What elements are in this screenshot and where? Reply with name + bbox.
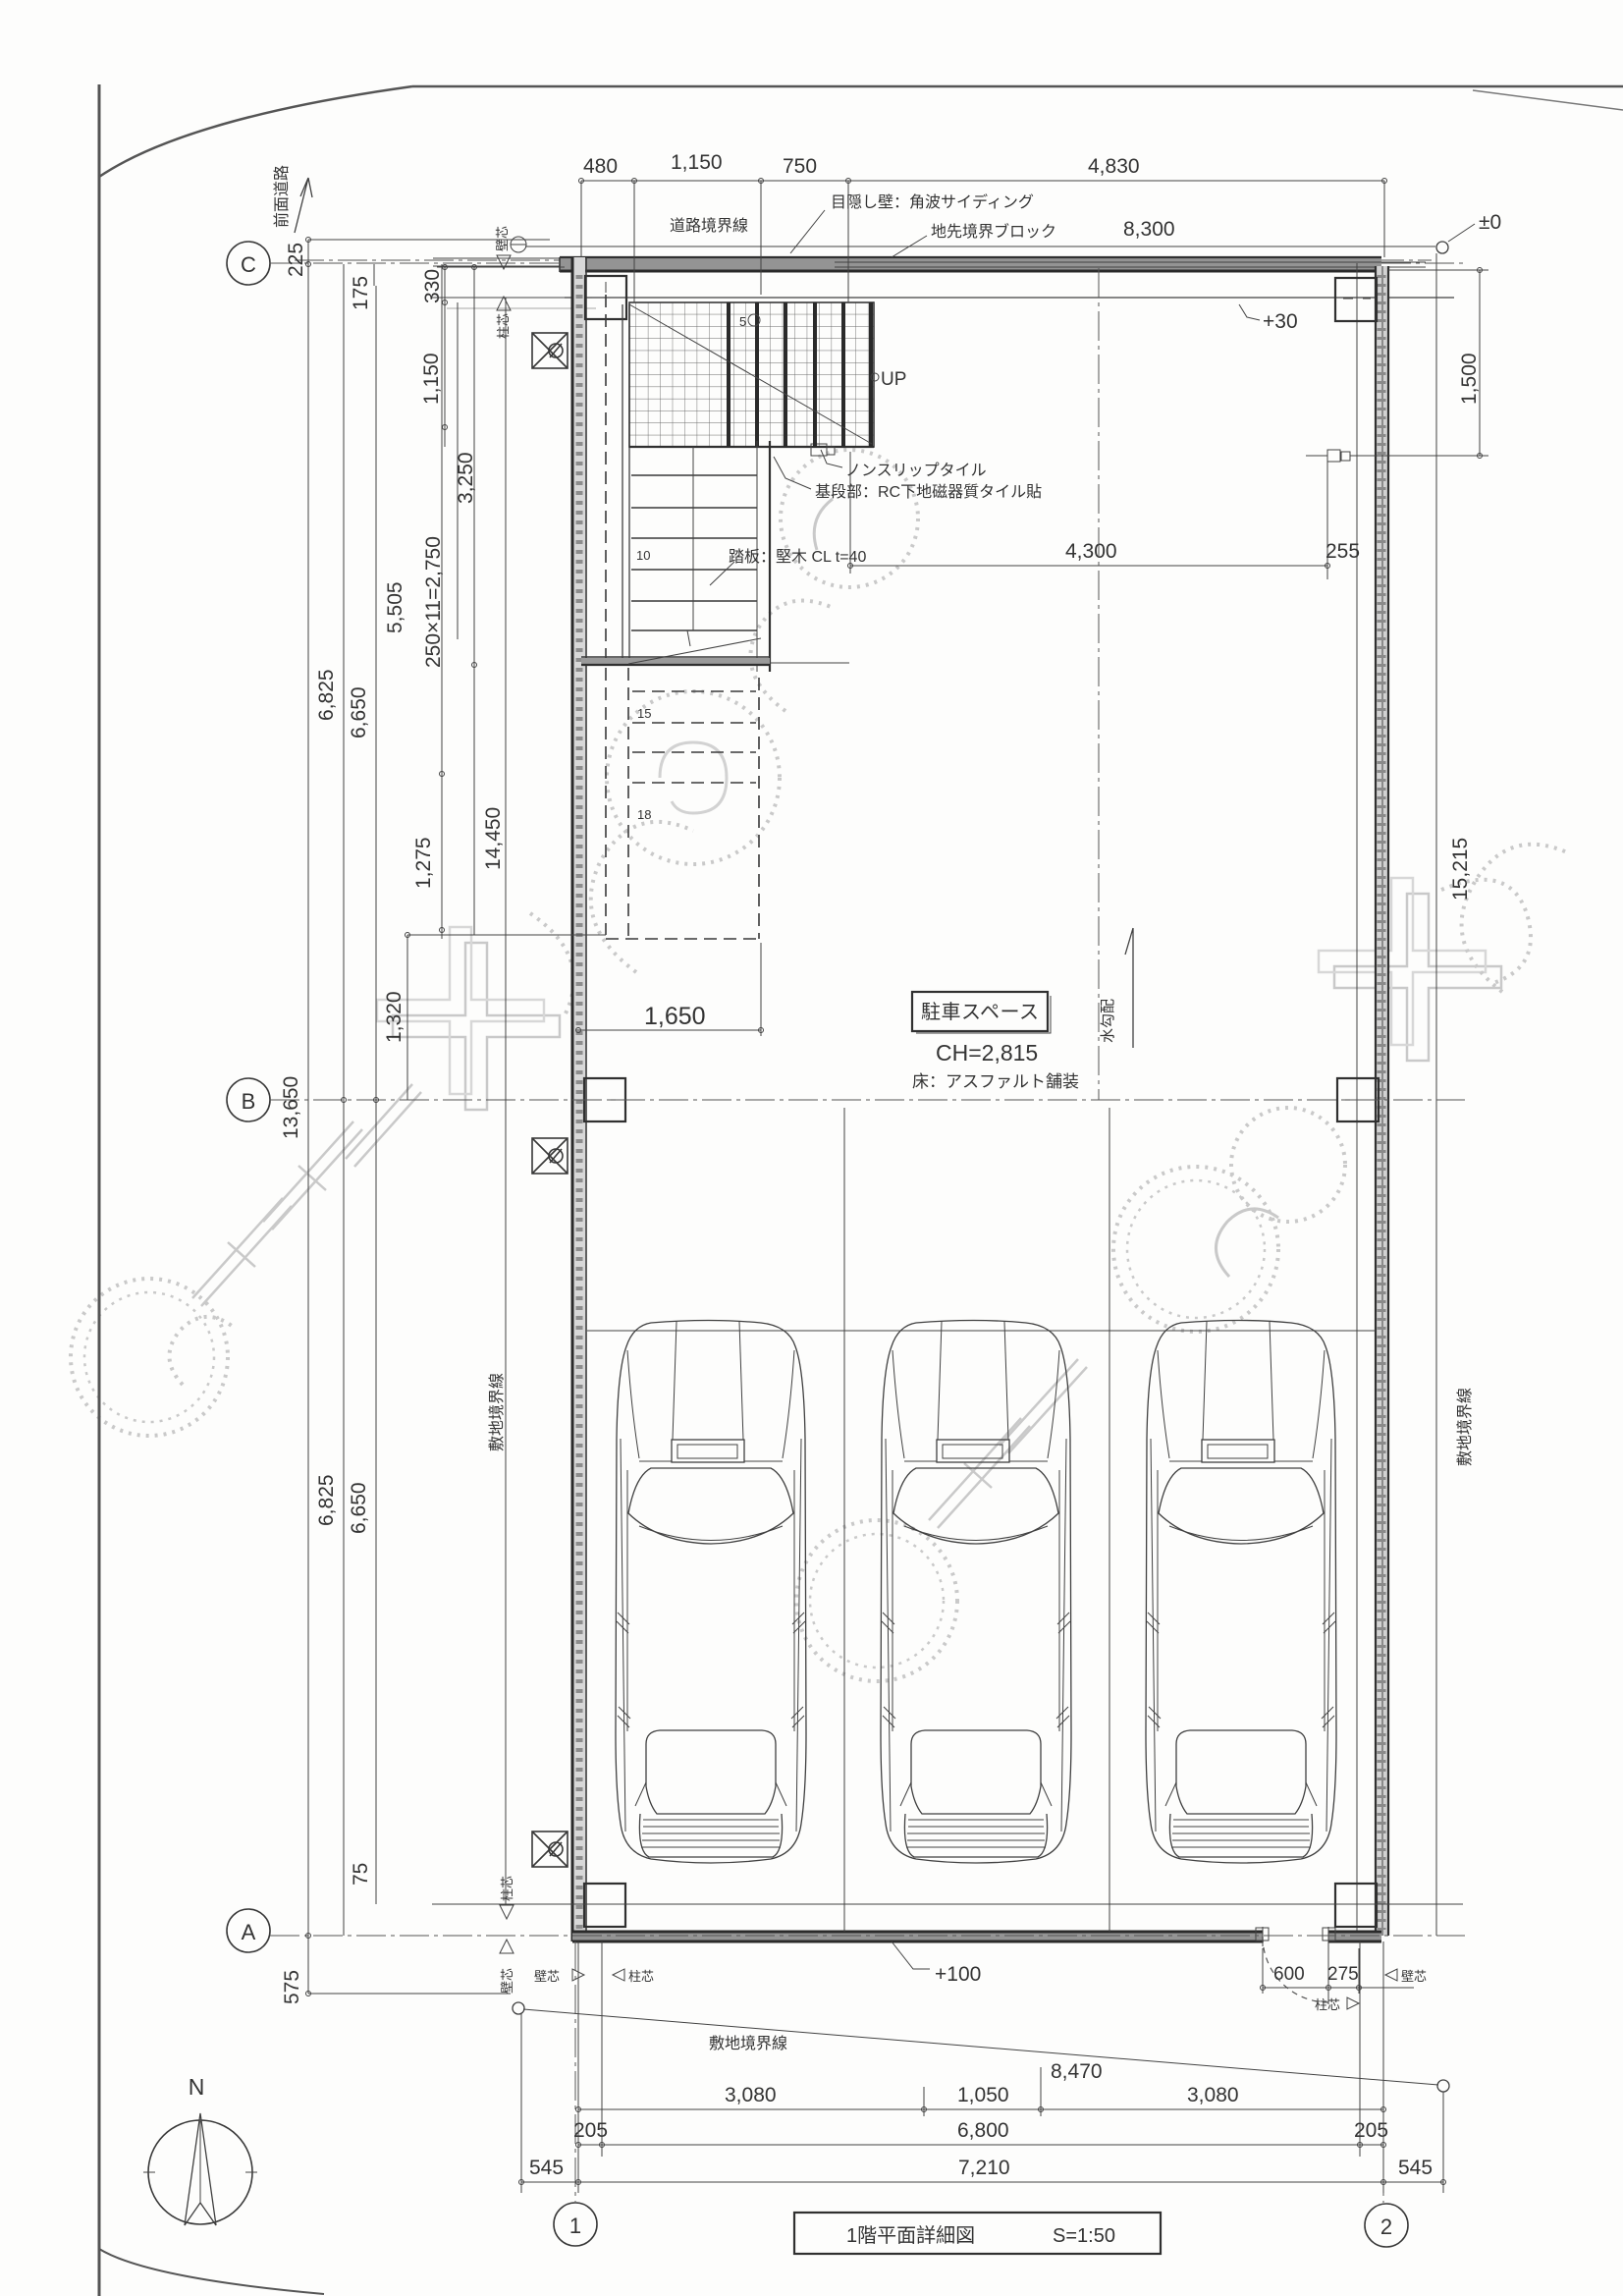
svg-text:ノンスリップタイル: ノンスリップタイル — [845, 462, 987, 479]
svg-text:1,500: 1,500 — [1458, 353, 1481, 405]
svg-text:8,470: 8,470 — [1051, 2060, 1103, 2083]
svg-text:地先境界ブロック: 地先境界ブロック — [931, 222, 1056, 241]
svg-text:S=1:50: S=1:50 — [1053, 2225, 1115, 2247]
svg-text:275: 275 — [1327, 1964, 1359, 1985]
svg-text:255: 255 — [1325, 540, 1360, 563]
svg-text:6,650: 6,650 — [348, 1482, 370, 1534]
svg-text:+100: +100 — [935, 1963, 981, 1986]
svg-text:床：アスファルト舗装: 床：アスファルト舗装 — [912, 1072, 1079, 1091]
svg-text:6,825: 6,825 — [315, 1474, 338, 1526]
svg-text:敷地境界線: 敷地境界線 — [1455, 1388, 1474, 1466]
svg-text:18: 18 — [637, 807, 651, 822]
svg-text:545: 545 — [1398, 2157, 1433, 2179]
svg-text:目隠し壁：角波サイディング: 目隠し壁：角波サイディング — [831, 192, 1034, 211]
svg-text:駐車スペース: 駐車スペース — [921, 1001, 1039, 1023]
svg-text:CH=2,815: CH=2,815 — [936, 1040, 1038, 1066]
svg-text:+30: +30 — [1263, 310, 1298, 333]
svg-text:750: 750 — [783, 155, 817, 178]
svg-text:10: 10 — [636, 548, 650, 563]
svg-text:壁芯: 壁芯 — [500, 1968, 514, 1994]
svg-text:柱芯: 柱芯 — [500, 1876, 514, 1901]
svg-text:1,150: 1,150 — [420, 353, 443, 405]
svg-text:13,650: 13,650 — [280, 1076, 302, 1139]
svg-text:壁芯: 壁芯 — [534, 1969, 560, 1984]
svg-text:N: N — [189, 2074, 205, 2100]
svg-text:330: 330 — [421, 269, 444, 303]
svg-text:1,050: 1,050 — [957, 2084, 1009, 2106]
svg-text:5: 5 — [739, 314, 746, 329]
svg-text:道路境界線: 道路境界線 — [670, 216, 748, 235]
svg-text:敷地境界線: 敷地境界線 — [709, 2034, 787, 2052]
svg-text:1,650: 1,650 — [644, 1003, 706, 1030]
svg-text:250×11=2,750: 250×11=2,750 — [422, 536, 445, 668]
svg-text:A: A — [242, 1920, 256, 1944]
svg-text:8,300: 8,300 — [1123, 218, 1175, 241]
svg-text:1,320: 1,320 — [383, 991, 406, 1043]
svg-text:6,650: 6,650 — [348, 686, 370, 738]
svg-text:14,450: 14,450 — [482, 807, 505, 870]
svg-text:3,250: 3,250 — [455, 452, 477, 504]
svg-text:7,210: 7,210 — [958, 2157, 1010, 2179]
svg-text:3,080: 3,080 — [725, 2084, 777, 2106]
svg-text:±0: ±0 — [1479, 211, 1501, 234]
svg-text:4,300: 4,300 — [1065, 540, 1117, 563]
svg-text:1,275: 1,275 — [412, 837, 435, 889]
svg-text:踏板：堅木 CL t=40: 踏板：堅木 CL t=40 — [729, 548, 866, 566]
svg-text:4,830: 4,830 — [1088, 155, 1140, 178]
svg-text:柱芯: 柱芯 — [628, 1969, 654, 1984]
svg-text:C: C — [241, 252, 256, 277]
svg-text:B: B — [242, 1089, 256, 1114]
svg-text:壁芯: 壁芯 — [495, 226, 510, 251]
svg-text:75: 75 — [350, 1863, 372, 1886]
svg-text:UP: UP — [881, 369, 906, 390]
svg-text:前面道路: 前面道路 — [273, 165, 291, 228]
svg-text:壁芯: 壁芯 — [1401, 1969, 1427, 1984]
svg-text:敷地境界線: 敷地境界線 — [487, 1373, 506, 1451]
svg-text:15: 15 — [637, 706, 651, 721]
svg-text:柱芯: 柱芯 — [1315, 1997, 1340, 2012]
svg-text:15,215: 15,215 — [1449, 838, 1472, 901]
svg-text:225: 225 — [285, 243, 307, 277]
svg-text:2: 2 — [1380, 2214, 1392, 2239]
svg-text:6,800: 6,800 — [957, 2119, 1009, 2142]
svg-text:3,080: 3,080 — [1187, 2084, 1239, 2106]
svg-text:柱芯: 柱芯 — [496, 313, 511, 339]
svg-text:1: 1 — [569, 2214, 581, 2238]
svg-text:575: 575 — [281, 1970, 303, 2004]
svg-text:1階平面詳細図: 1階平面詳細図 — [846, 2224, 975, 2247]
svg-text:6,825: 6,825 — [315, 669, 338, 721]
svg-text:175: 175 — [350, 276, 372, 310]
svg-text:水勾配: 水勾配 — [1100, 999, 1116, 1043]
svg-text:545: 545 — [529, 2157, 564, 2179]
svg-text:5,505: 5,505 — [384, 581, 406, 633]
svg-text:基段部：RC下地磁器質タイル貼: 基段部：RC下地磁器質タイル貼 — [815, 483, 1042, 501]
svg-text:480: 480 — [583, 155, 618, 178]
svg-text:1,150: 1,150 — [671, 151, 723, 174]
svg-text:600: 600 — [1273, 1964, 1305, 1985]
